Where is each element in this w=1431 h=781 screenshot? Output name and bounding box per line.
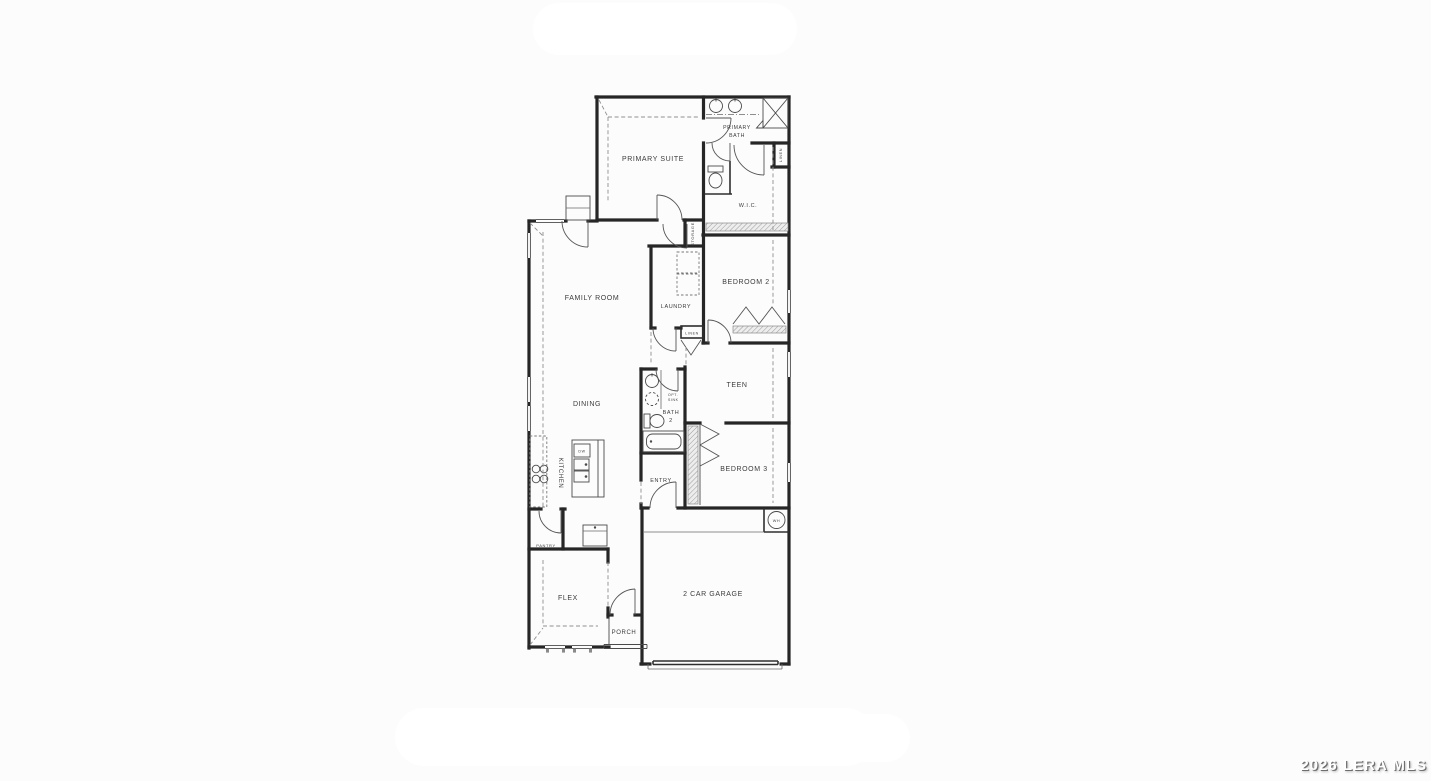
label-opt-sink-1: OPT. — [668, 393, 678, 397]
room-label-primary-bath-2: BATH — [729, 133, 745, 139]
laundry-door — [653, 328, 676, 351]
washer-dryer-symbols — [677, 252, 699, 295]
label-opt-sink-2: SINK — [668, 398, 679, 402]
primary-toilet-symbol — [708, 166, 723, 188]
window-family-room-left — [526, 233, 531, 258]
refrigerator-symbol — [583, 525, 607, 546]
room-label-porch: PORCH — [612, 630, 637, 636]
room-label-pantry: PANTRY — [536, 543, 555, 548]
room-label-bedroom3: BEDROOM 3 — [720, 466, 767, 473]
room-label-primary-suite: PRIMARY SUITE — [622, 156, 684, 163]
linen-closet-door — [681, 340, 701, 355]
room-label-garage: 2 CAR GARAGE — [683, 591, 743, 598]
ceiling-dashed-lines — [530, 100, 773, 645]
kitchen-island — [572, 440, 604, 497]
bath2-door — [656, 369, 678, 391]
bedroom2-closet-shelf — [733, 326, 786, 333]
primary-bath-vanity-sinks — [706, 98, 761, 114]
room-label-entry: ENTRY — [650, 478, 672, 484]
window-bedroom2-right — [786, 290, 791, 313]
room-label-dining: DINING — [573, 401, 601, 408]
window-family-room-top — [536, 218, 564, 223]
bathtub-symbol — [643, 431, 684, 452]
room-label-linen-upper: LINEN — [779, 148, 783, 162]
window-dining-left-1 — [526, 377, 531, 402]
bedroom3-closet-bifold-2 — [700, 445, 719, 466]
room-label-linen-hall: LINEN — [685, 332, 699, 336]
floor-plan-drawing: PRIMARY SUITE PRIMARY BATH W.I.C. LINEN … — [0, 0, 1431, 781]
window-bedroom3-right — [786, 463, 791, 482]
label-dishwasher: DW — [578, 450, 585, 454]
bath2-toilet-symbol — [644, 414, 664, 428]
room-label-family-room: FAMILY ROOM — [565, 295, 620, 302]
primary-suite-door — [657, 195, 682, 220]
front-door — [610, 589, 635, 615]
bedroom2-door — [708, 320, 731, 343]
wic-shelf — [706, 223, 788, 231]
mls-floor-plan-image: PRIMARY SUITE PRIMARY BATH W.I.C. LINEN … — [0, 0, 1431, 781]
doors — [539, 118, 785, 615]
garage-door-and-porch — [546, 617, 782, 669]
room-label-flex: FLEX — [558, 595, 578, 602]
room-label-kitchen: KITCHEN — [557, 458, 563, 489]
toilet-room-door — [712, 143, 730, 161]
shower-symbol — [757, 98, 789, 128]
bedroom2-closet-bifold — [733, 307, 785, 324]
room-label-bath2-1: BATH — [663, 410, 680, 416]
wic-door — [734, 145, 764, 175]
room-label-bath2-2: 2 — [669, 418, 673, 424]
bedroom3-closet-bifold-1 — [700, 424, 719, 445]
room-label-storage: STORAGE — [690, 222, 695, 246]
bath2-sink-symbol — [646, 370, 662, 409]
garage-entry-door — [650, 482, 676, 508]
room-label-bedroom2: BEDROOM 2 — [722, 279, 769, 286]
bedroom3-closet-shelf — [688, 426, 698, 504]
room-label-wic: W.I.C. — [739, 203, 758, 209]
label-water-heater: WH — [773, 519, 781, 523]
pantry-door — [539, 511, 561, 533]
mls-watermark-text: 2026 LERA MLS — [1300, 757, 1427, 774]
window-teen-right — [786, 352, 791, 377]
room-label-laundry: LAUNDRY — [661, 304, 691, 310]
cooktop-symbol — [530, 436, 548, 507]
window-dining-left-2 — [526, 406, 531, 431]
room-label-primary-bath-1: PRIMARY — [723, 125, 751, 131]
room-label-teen: TEEN — [726, 382, 747, 389]
mls-watermark: 2026 LERA MLS — [1300, 757, 1427, 774]
